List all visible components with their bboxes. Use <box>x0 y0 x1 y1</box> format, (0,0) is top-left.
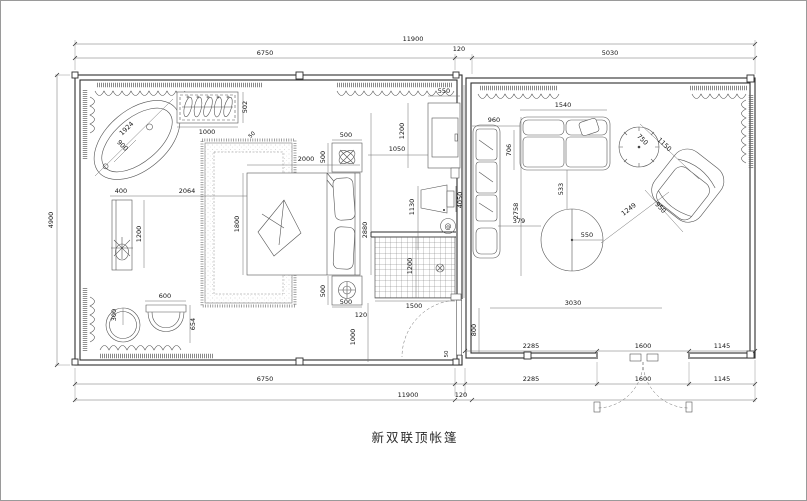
dim-table-gap: 533 <box>557 183 565 195</box>
curtain-top-right <box>692 94 746 99</box>
pillow <box>333 177 356 220</box>
lounge-chair <box>146 305 186 332</box>
dim-table-offset: 379 <box>513 217 525 225</box>
dim-bed-depth: 1800 <box>233 216 241 233</box>
curtain-left-upper <box>90 97 95 133</box>
door-head-jamb <box>451 294 461 300</box>
floor-plan-sheet: @ <box>0 0 807 501</box>
nightstand-top <box>332 143 362 172</box>
dim-chair-depth: 654 <box>189 318 197 330</box>
dim-sofa-depth: 706 <box>505 144 513 156</box>
vanity <box>111 200 133 270</box>
dim-tub-radius: 900 <box>115 138 129 152</box>
tent-posts <box>72 72 754 365</box>
dim-chair-width: 600 <box>159 292 171 300</box>
floor-plan-drawing: @ <box>0 0 807 501</box>
dim-closet-depth: 502 <box>241 101 249 113</box>
shower-wall <box>371 232 456 237</box>
tv-indicator <box>443 209 445 211</box>
door-panel-left <box>630 354 641 361</box>
door-leaf-right <box>686 402 692 412</box>
television <box>421 185 456 213</box>
dim-top-gap: 120 <box>453 45 465 53</box>
door-swing-arc-right <box>643 362 689 408</box>
dim-shower-depth: 1200 <box>406 258 414 275</box>
dim-nightstand-top-width: 500 <box>340 131 352 139</box>
tent-walls <box>72 72 755 365</box>
dim-bed-zone-height: 2880 <box>361 222 369 239</box>
dim-nightstand-top-depth: 500 <box>319 151 327 163</box>
dim-vanity-width: 400 <box>115 187 127 195</box>
dim-inner-seg1: 2285 <box>523 342 540 350</box>
dim-cabinet-width: 550 <box>438 87 450 95</box>
curtain-top-mid <box>337 91 454 96</box>
dim-shower-width: 1500 <box>406 302 423 310</box>
wall-switch <box>451 168 459 178</box>
tv-cabinet <box>428 103 460 168</box>
curtain-top-left <box>95 91 185 96</box>
dim-table-to-chair: 1249 <box>620 201 638 217</box>
door-leaf-left <box>594 402 600 412</box>
dim-floor-gap: 120 <box>355 311 367 319</box>
dim-door-width: 800 <box>470 324 478 336</box>
dim-tub-length: 1924 <box>118 120 135 137</box>
dim-sofa-offset: 960 <box>488 116 500 124</box>
door-jambs <box>457 300 690 359</box>
dim-left-height: 4900 <box>47 212 55 229</box>
dim-divider-wall: 4050 <box>456 192 464 209</box>
door-swing-arc-left <box>597 362 643 408</box>
mirror <box>432 118 458 157</box>
ottoman <box>476 228 497 254</box>
dim-floor-offset: 1000 <box>349 329 357 346</box>
drawing-title: 新双联顶帐篷 <box>371 430 458 445</box>
dim-tv-offset: 1130 <box>408 199 416 216</box>
dim-inner-seg2: 1600 <box>635 342 652 350</box>
dim-inner-seg3: 1145 <box>714 342 731 350</box>
armchair <box>645 143 730 229</box>
dim-bottom-gap: 120 <box>455 391 467 399</box>
pillow <box>333 227 355 270</box>
dim-bed-to-cabinet: 1050 <box>389 145 406 153</box>
curtain-left-lower <box>90 297 95 342</box>
sofa <box>520 117 610 170</box>
door-leaf <box>457 300 462 355</box>
dim-bottom-seg3: 1145 <box>714 375 731 383</box>
dim-nightstand-bottom-depth: 500 <box>319 285 327 297</box>
floor-socket: @ <box>441 219 456 234</box>
dim-nightstand-bottom-width: 500 <box>340 298 352 306</box>
dim-vanity-to-bed: 2064 <box>179 187 196 195</box>
socket-symbol: @ <box>445 223 452 231</box>
dim-top-left: 6750 <box>257 49 274 57</box>
faucet-icon <box>111 237 133 259</box>
dim-rug-corner: 50 <box>248 130 258 140</box>
bowl-icon <box>339 282 356 299</box>
dim-sofa-width: 1540 <box>555 101 572 109</box>
dim-bottom-seg2: 1600 <box>635 375 652 383</box>
dim-top-right: 5030 <box>602 49 619 57</box>
patio-door-opening <box>596 351 690 361</box>
dim-vanity-length: 1200 <box>135 226 143 243</box>
dim-stool-radius: 300 <box>110 309 118 321</box>
dim-bottom-seg1: 2285 <box>523 375 540 383</box>
chaise-sofa <box>473 125 500 258</box>
dim-armchair-diag: 1150 <box>656 136 674 153</box>
curtain-right-wall <box>742 100 747 163</box>
curtain-bottom-left <box>100 346 181 351</box>
dim-door-jamb: 50 <box>444 350 450 357</box>
dim-table-radius: 550 <box>581 231 593 239</box>
dim-bottom-left: 6750 <box>257 375 274 383</box>
dim-closet-width: 1000 <box>199 128 216 136</box>
dimension-labels: 11900 6750 120 5030 4900 6750 2285 1600 … <box>47 35 730 399</box>
dim-top-total: 11900 <box>403 35 424 43</box>
dim-bottom-total: 11900 <box>398 391 419 399</box>
patio-double-door <box>594 354 692 412</box>
closet <box>177 92 238 123</box>
curtain-top-living <box>478 94 559 99</box>
dim-bed-width: 2000 <box>298 155 315 163</box>
bed <box>247 173 360 275</box>
dim-cabinet-height: 1200 <box>398 123 406 140</box>
shower-floor <box>375 237 455 298</box>
dim-living-width: 3030 <box>565 299 582 307</box>
tub-drain-icon <box>145 123 153 131</box>
door-panel-right <box>647 354 658 361</box>
dim-side-table: 750 <box>635 132 649 146</box>
